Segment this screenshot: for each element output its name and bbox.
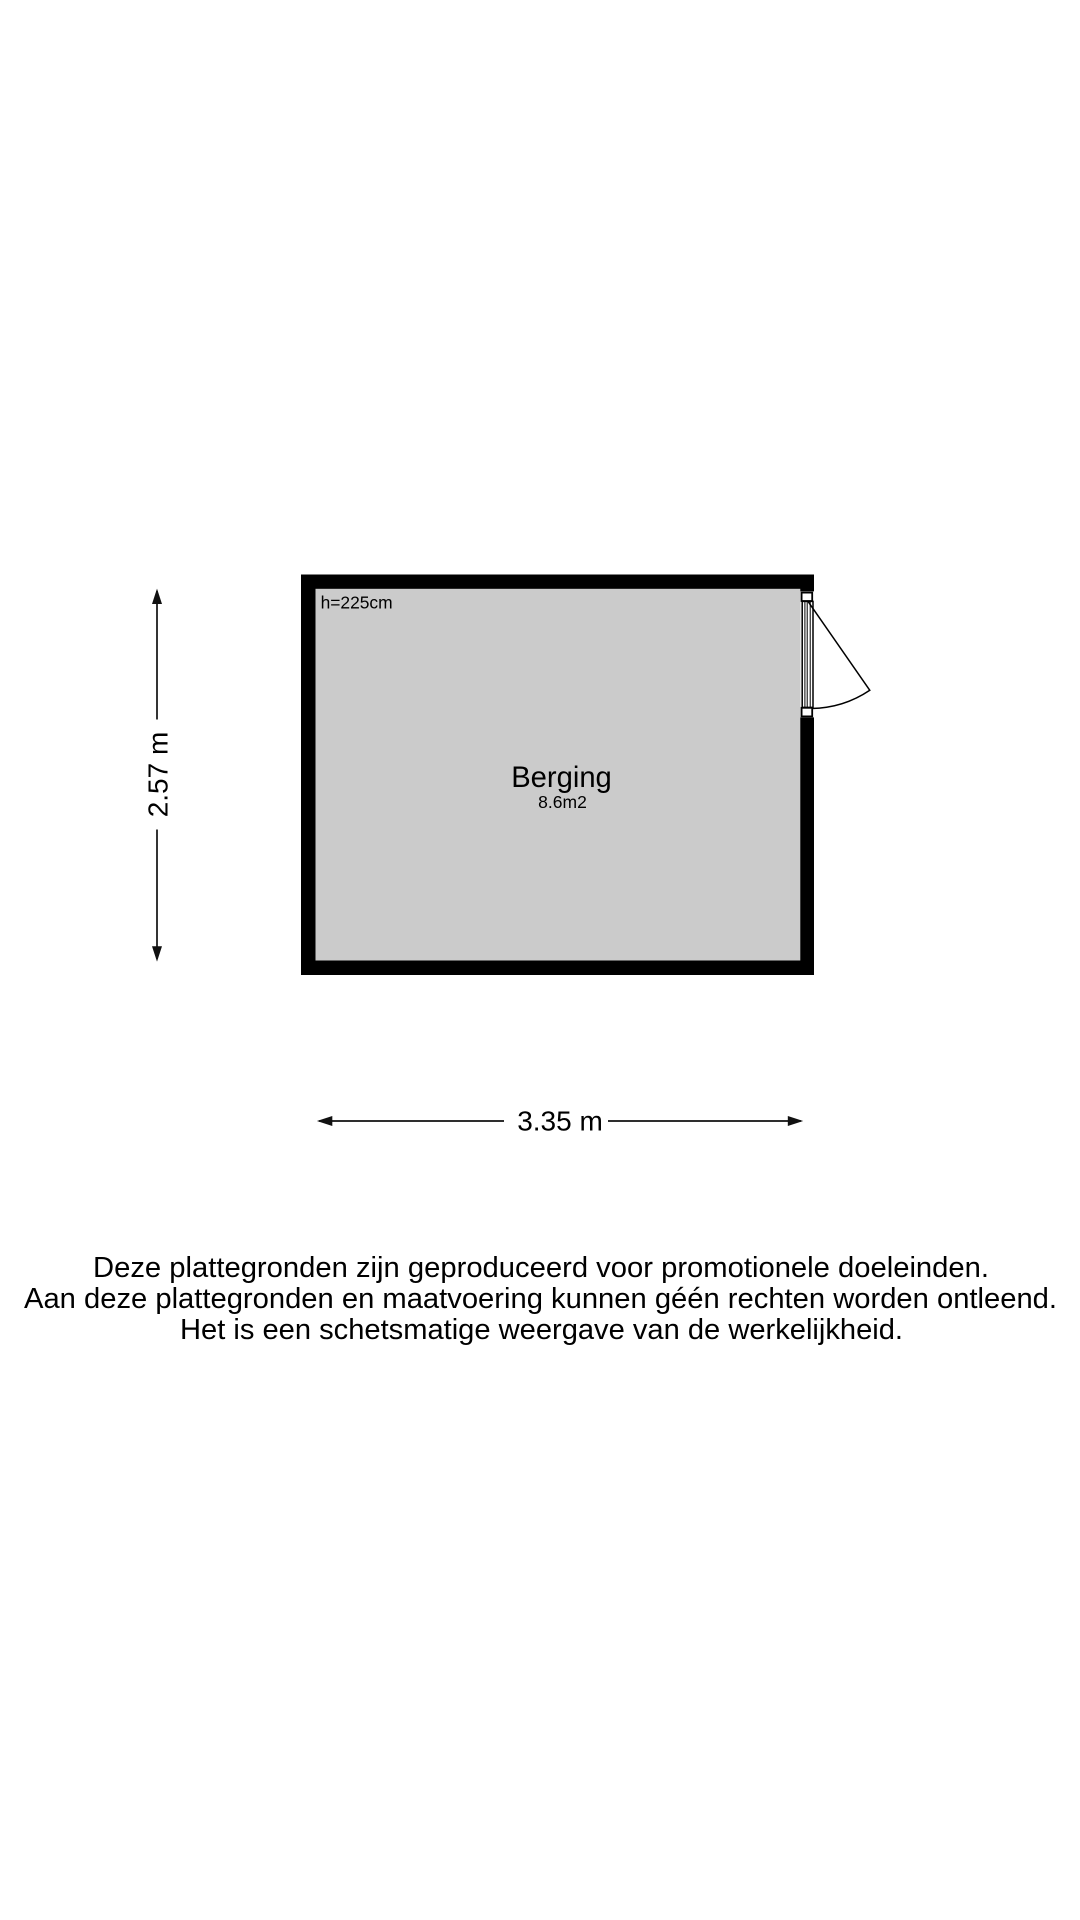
svg-text:Aan deze plattegronden en maat: Aan deze plattegronden en maatvoering ku… (24, 1283, 1057, 1315)
svg-text:Deze plattegronden zijn geprod: Deze plattegronden zijn geproduceerd voo… (93, 1252, 989, 1284)
svg-text:Berging: Berging (511, 762, 612, 794)
svg-text:3.35 m: 3.35 m (517, 1106, 603, 1137)
svg-text:2.57 m: 2.57 m (142, 732, 173, 818)
svg-text:h=225cm: h=225cm (321, 593, 393, 613)
svg-text:8.6m2: 8.6m2 (538, 792, 587, 812)
svg-text:Het is een schetsmatige weerga: Het is een schetsmatige weergave van de … (180, 1314, 903, 1346)
